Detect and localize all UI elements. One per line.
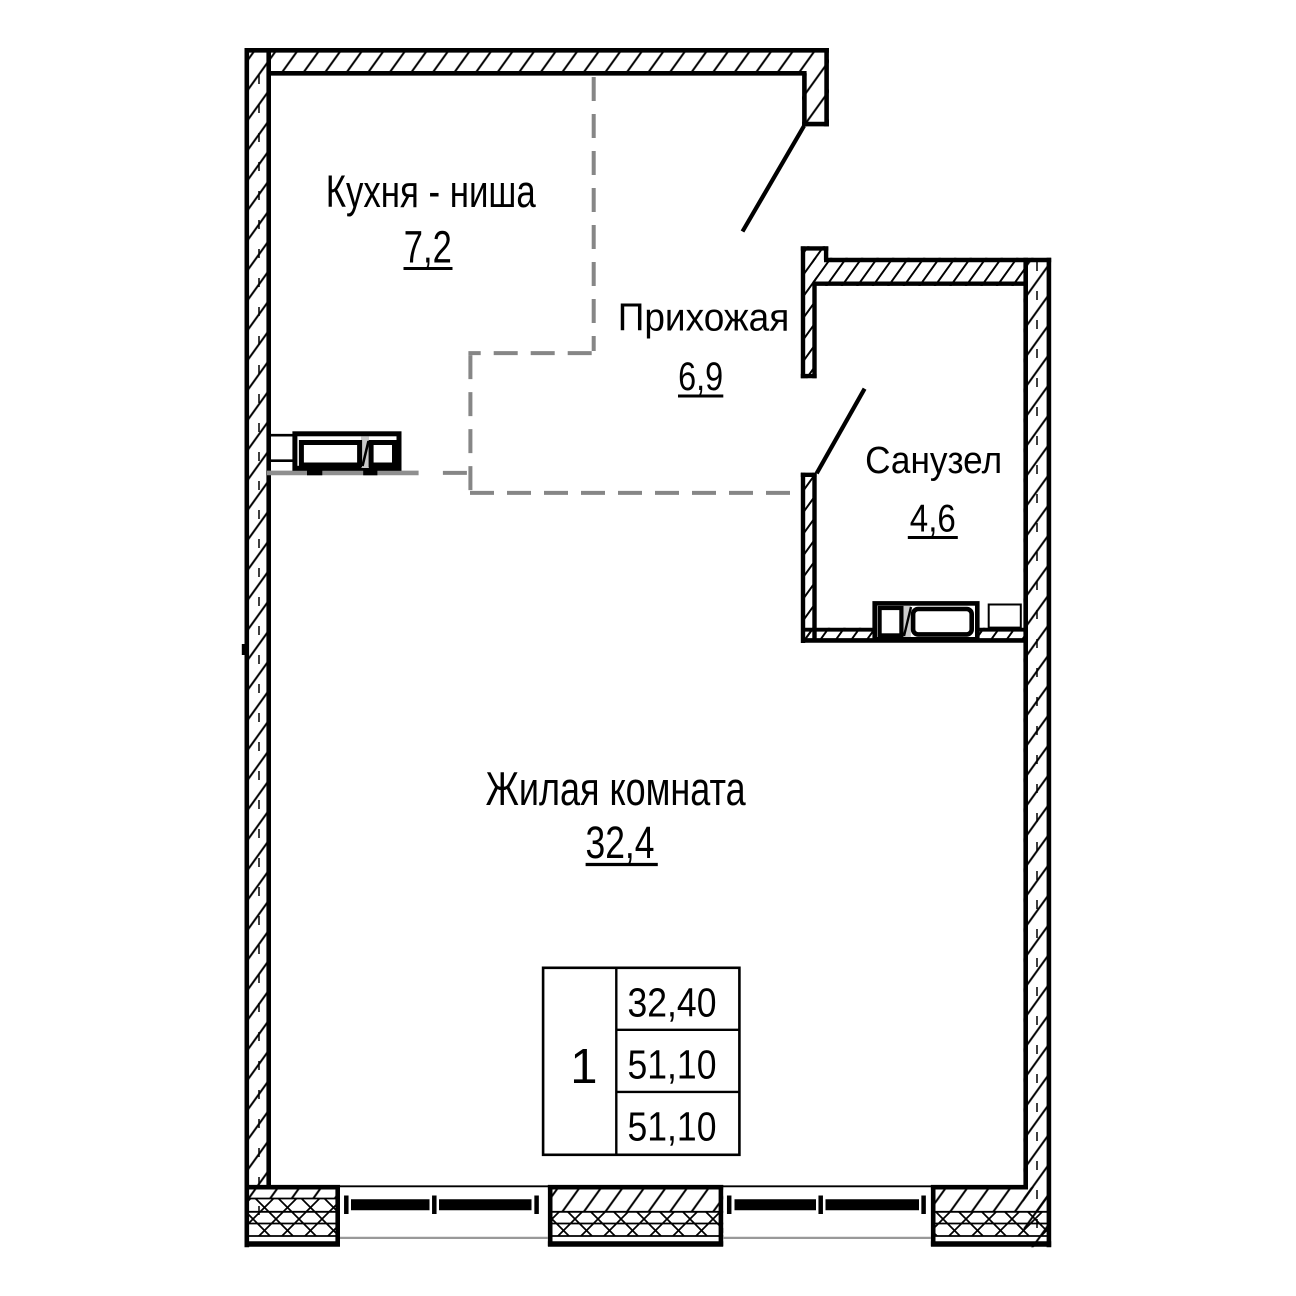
svg-text:6,9: 6,9: [678, 355, 723, 399]
svg-text:Кухня - ниша: Кухня - ниша: [326, 166, 537, 217]
svg-text:4,6: 4,6: [910, 498, 956, 541]
svg-text:32,40: 32,40: [628, 980, 717, 1026]
svg-text:51,10: 51,10: [628, 1042, 717, 1088]
svg-text:51,10: 51,10: [628, 1104, 717, 1150]
svg-text:7,2: 7,2: [404, 222, 452, 273]
svg-text:Жилая комната: Жилая комната: [486, 762, 747, 815]
svg-text:1: 1: [570, 1040, 597, 1094]
svg-text:32,4: 32,4: [586, 817, 655, 868]
svg-text:Санузел: Санузел: [865, 440, 1002, 482]
svg-text:Прихожая: Прихожая: [618, 296, 790, 339]
